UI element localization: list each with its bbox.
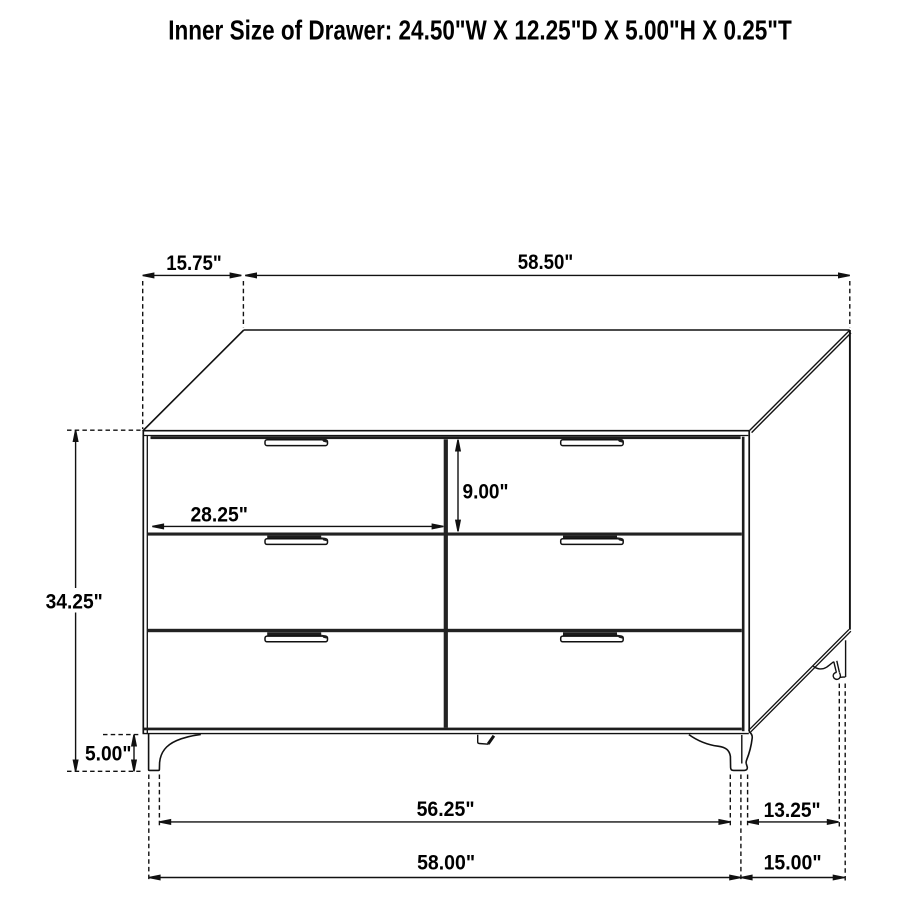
svg-text:56.25": 56.25" [417,798,475,821]
svg-text:58.50": 58.50" [518,251,574,274]
svg-text:34.25": 34.25" [46,590,103,613]
svg-text:58.00": 58.00" [417,852,475,875]
svg-text:5.00": 5.00" [85,742,132,765]
svg-text:9.00": 9.00" [463,481,509,504]
svg-text:15.00": 15.00" [764,852,822,875]
svg-text:28.25": 28.25" [190,503,248,526]
svg-text:15.75": 15.75" [166,252,222,275]
svg-text:Inner Size of Drawer: 24.50"W: Inner Size of Drawer: 24.50"W X 12.25"D … [168,14,792,45]
svg-text:13.25": 13.25" [764,799,821,822]
